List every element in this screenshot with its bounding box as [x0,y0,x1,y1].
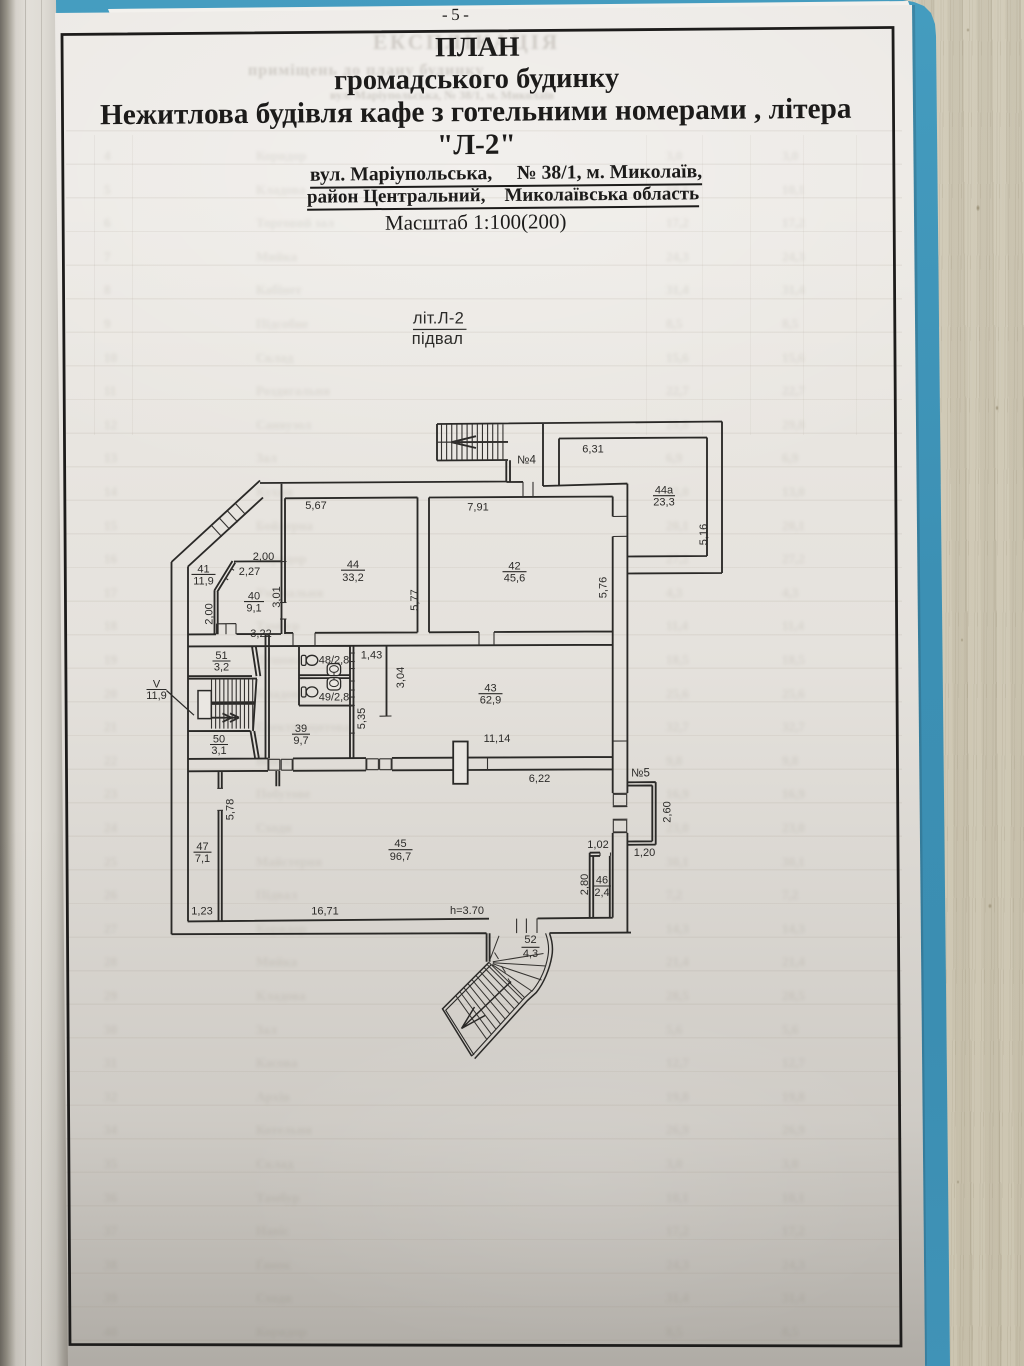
svg-text:2,00: 2,00 [204,603,216,624]
svg-text:51: 51 [215,650,227,662]
svg-text:5,16: 5,16 [698,524,710,545]
svg-text:4,3: 4,3 [523,948,538,960]
svg-text:2,4: 2,4 [594,887,609,899]
svg-text:1,02: 1,02 [587,839,608,851]
svg-text:44a: 44a [655,485,674,497]
svg-text:5,76: 5,76 [598,577,610,598]
svg-text:16,71: 16,71 [311,906,339,918]
svg-text:47: 47 [196,841,208,853]
svg-text:7,91: 7,91 [467,502,488,514]
svg-text:9,7: 9,7 [293,735,308,747]
svg-text:42: 42 [508,561,520,573]
svg-text:№4: №4 [517,454,536,466]
svg-text:3,1: 3,1 [211,745,226,757]
svg-text:48/2,8: 48/2,8 [319,655,350,667]
svg-text:1,20: 1,20 [634,847,655,859]
svg-text:5,78: 5,78 [225,799,237,820]
svg-text:45,6: 45,6 [504,573,525,585]
svg-text:3,22: 3,22 [250,628,271,640]
svg-text:6,22: 6,22 [529,773,550,785]
svg-text:46: 46 [596,875,608,887]
svg-text:2,80: 2,80 [579,874,591,895]
svg-text:11,9: 11,9 [146,690,167,702]
svg-text:45: 45 [394,838,406,850]
svg-text:2,60: 2,60 [662,801,674,822]
svg-text:3,04: 3,04 [395,667,407,688]
svg-text:7,1: 7,1 [195,853,210,865]
svg-text:23,3: 23,3 [653,497,674,509]
svg-text:39: 39 [295,723,307,735]
svg-text:49/2,8: 49/2,8 [319,692,350,704]
svg-text:6,31: 6,31 [582,444,603,456]
svg-text:33,2: 33,2 [342,572,363,584]
svg-text:40: 40 [248,591,260,603]
svg-text:3,2: 3,2 [214,662,229,674]
svg-text:11,14: 11,14 [484,733,511,745]
svg-text:50: 50 [213,734,225,746]
svg-text:62,9: 62,9 [480,695,501,707]
svg-text:3,01: 3,01 [271,586,283,607]
svg-text:1,43: 1,43 [361,650,382,662]
svg-text:96,7: 96,7 [390,851,411,863]
svg-text:2,27: 2,27 [239,566,260,578]
svg-text:5,67: 5,67 [305,500,326,512]
svg-text:літ.Л-2: літ.Л-2 [413,310,464,328]
svg-text:52: 52 [524,934,536,946]
svg-text:V: V [153,679,161,691]
svg-text:№5: №5 [631,767,650,779]
svg-text:h=3.70: h=3.70 [450,905,484,917]
svg-text:9,1: 9,1 [246,603,261,615]
svg-text:2,00: 2,00 [253,551,274,563]
svg-text:1,23: 1,23 [191,906,212,918]
svg-text:підвал: підвал [412,330,463,348]
svg-text:43: 43 [484,683,496,695]
svg-text:5,77: 5,77 [409,589,421,610]
svg-text:11,9: 11,9 [193,576,214,588]
svg-text:44: 44 [347,559,359,571]
svg-text:5,35: 5,35 [356,708,368,729]
